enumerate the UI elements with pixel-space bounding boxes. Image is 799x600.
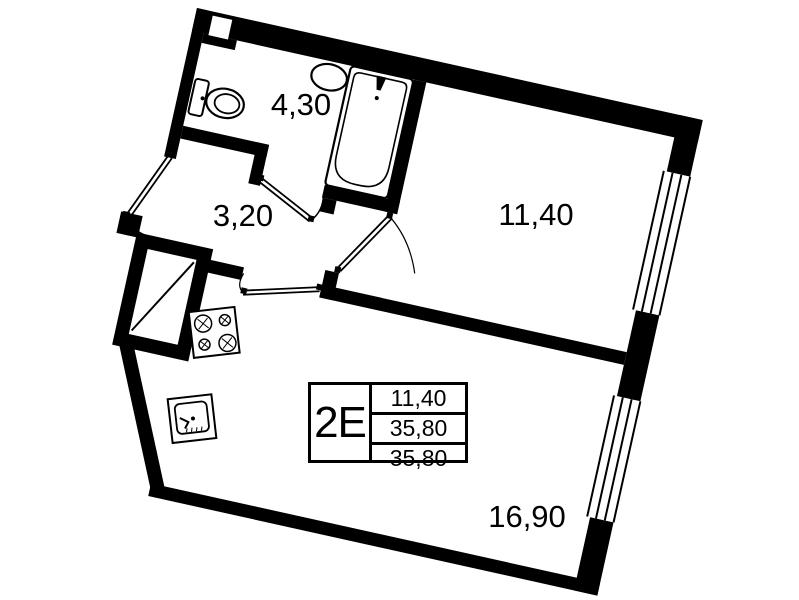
kitchen-living-area-label: 16,90	[488, 499, 566, 535]
room-living-partition	[319, 285, 626, 365]
unit-info-row-total-area: 35,80	[372, 412, 465, 442]
room-door	[334, 204, 426, 289]
unit-info-table: 2Е 11,40 35,80 35,80	[308, 382, 468, 463]
toilet-icon	[188, 78, 248, 125]
room-door-arc	[382, 219, 426, 273]
unit-type-label: 2Е	[311, 385, 372, 460]
floor-plan-drawing	[0, 0, 799, 600]
wall-niche	[208, 16, 232, 40]
floor-plan: 4,30 3,20 11,40 16,90 2Е 11,40 35,80 35,…	[0, 0, 799, 600]
window-room-icon	[632, 171, 692, 316]
outer-wall-top	[192, 8, 703, 143]
bathroom-area-label: 4,30	[271, 87, 331, 123]
living-room-door	[237, 267, 323, 311]
kitchen-sink-icon	[168, 394, 217, 443]
window-living-icon	[586, 395, 642, 523]
room-area-label: 11,40	[498, 197, 573, 233]
unit-info-row-full-area: 35,80	[372, 442, 465, 472]
unit-info-rows: 11,40 35,80 35,80	[372, 385, 465, 460]
hallway-area-label: 3,20	[213, 198, 273, 234]
stove-icon	[189, 307, 240, 358]
unit-info-row-living-area: 11,40	[372, 385, 465, 412]
